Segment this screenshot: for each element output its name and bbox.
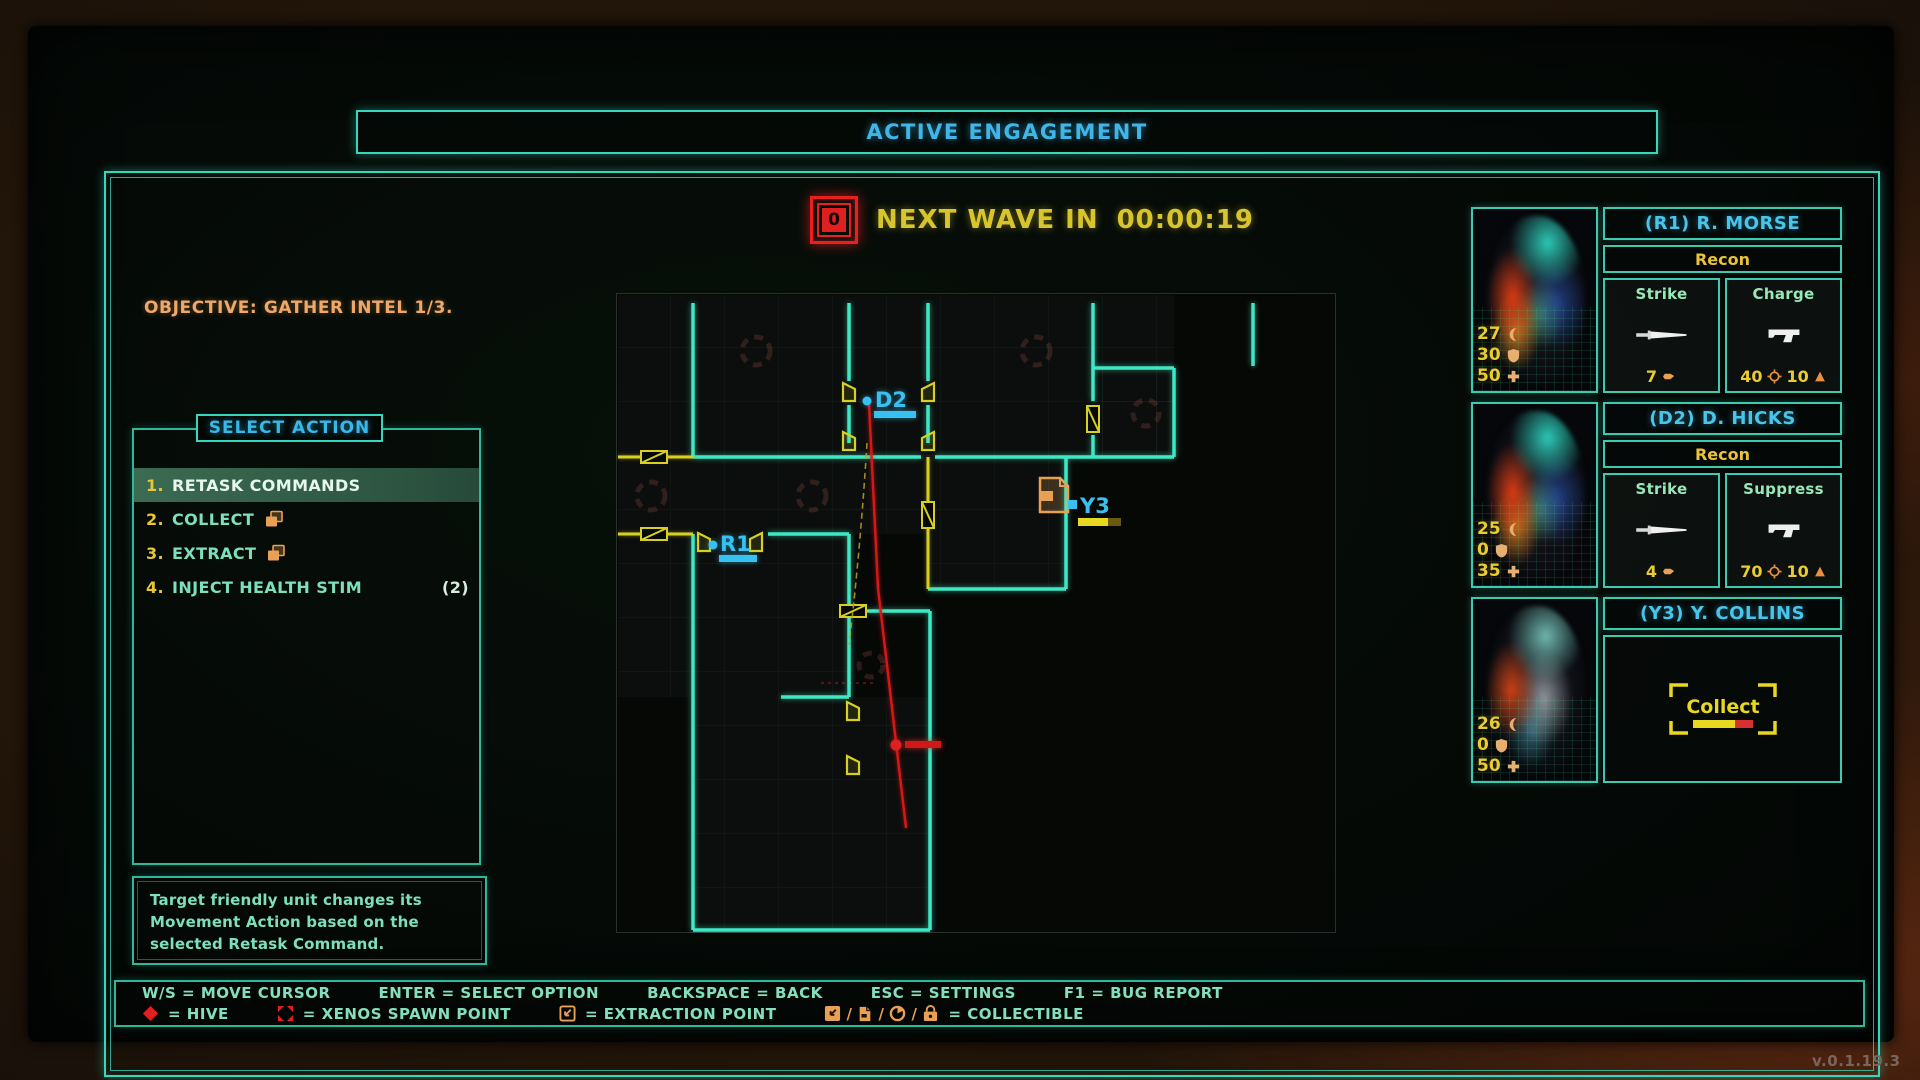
action-menu-title: SELECT ACTION [209, 418, 371, 438]
portrait-d-hicks: 25 0 35 [1471, 402, 1598, 588]
menu-item-retask-commands[interactable]: 1. RETASK COMMANDS [134, 468, 479, 502]
shield-icon [1494, 738, 1509, 753]
svg-text:Collect: Collect [1686, 696, 1759, 718]
keybind-bugreport: F1 = BUG REPORT [1064, 984, 1223, 1002]
health-cross-icon [1506, 369, 1521, 384]
melee-icon [1662, 565, 1677, 578]
keybind-settings: ESC = SETTINGS [871, 984, 1016, 1002]
squad-card-r1[interactable]: 27 30 50 (R1) R. MORSE Recon Strike [1471, 207, 1842, 393]
ammo-cone-icon [1813, 565, 1827, 578]
unit-name: (Y3) Y. COLLINS [1603, 597, 1842, 630]
portrait-y-collins: 26 0 50 [1471, 597, 1598, 783]
crt-screen: ACTIVE ENGAGEMENT 0 NEXT WAVE IN 00:00:1… [28, 26, 1894, 1042]
crescent-icon [1506, 327, 1521, 342]
page-title: ACTIVE ENGAGEMENT [866, 120, 1147, 144]
crescent-icon [1506, 717, 1521, 732]
menu-item-inject-health-stim[interactable]: 4. INJECT HEALTH STIM (2) [134, 570, 479, 604]
armor-stat: 30 [1477, 345, 1521, 365]
keybind-row: W/S = MOVE CURSOR ENTER = SELECT OPTION … [142, 984, 1837, 1002]
armor-stat: 0 [1477, 540, 1521, 560]
armor-stat: 0 [1477, 735, 1521, 755]
svg-text:R1: R1 [720, 532, 751, 556]
xenos-spawn-icon [277, 1005, 294, 1022]
squad-card-y3[interactable]: 26 0 50 (Y3) Y. COLLINS [1471, 597, 1842, 783]
menu-item-extract[interactable]: 3. EXTRACT [134, 536, 479, 570]
knife-icon [1633, 522, 1691, 538]
speed-stat: 27 [1477, 324, 1521, 344]
accuracy-crosshair-icon [1767, 369, 1782, 384]
health-stat: 50 [1477, 756, 1521, 776]
unit-class: Recon [1603, 440, 1842, 468]
crescent-icon [1506, 522, 1521, 537]
legend-hive: = HIVE [142, 1005, 229, 1023]
unit-name: (R1) R. MORSE [1603, 207, 1842, 240]
squad-card-d2[interactable]: 25 0 35 (D2) D. HICKS Recon Strike [1471, 402, 1842, 588]
keybind-select: ENTER = SELECT OPTION [379, 984, 600, 1002]
action-description-box: Target friendly unit changes its Movemen… [132, 876, 487, 965]
health-cross-icon [1506, 759, 1521, 774]
collect-action-button[interactable]: Collect [1661, 676, 1785, 742]
legend-row: = HIVE = XENOS SPAWN POINT = EXTRACTION … [142, 1005, 1837, 1023]
disc-icon [889, 1005, 906, 1022]
action-description: Target friendly unit changes its Movemen… [137, 881, 482, 960]
keybind-back: BACKSPACE = BACK [647, 984, 823, 1002]
wave-timer: 00:00:19 [1117, 205, 1254, 235]
documents-icon [264, 510, 284, 529]
documents-icon [266, 544, 286, 563]
accuracy-crosshair-icon [1767, 564, 1782, 579]
separator: / [911, 1005, 917, 1023]
ammo-cone-icon [1813, 370, 1827, 383]
health-stat: 50 [1477, 366, 1521, 386]
pistol-icon [1764, 325, 1804, 345]
tactical-map[interactable]: D2 R1 Y3 [616, 293, 1336, 933]
health-stat: 35 [1477, 561, 1521, 581]
ability-strike: Strike 4 [1603, 473, 1720, 588]
ability-charge: Charge 40 10 [1725, 278, 1842, 393]
document-icon [857, 1005, 873, 1023]
extraction-icon [559, 1005, 576, 1022]
collect-progress-remainder [1735, 720, 1753, 728]
unit-class: Recon [1603, 245, 1842, 273]
map-collectible-document-icon[interactable] [1040, 478, 1068, 512]
speed-stat: 26 [1477, 714, 1521, 734]
stim-count: (2) [442, 578, 469, 597]
action-menu: 1. RETASK COMMANDS 2. COLLECT 3. EXTRACT [132, 428, 481, 865]
header-tab: ACTIVE ENGAGEMENT [356, 110, 1658, 154]
squad-panel: 27 30 50 (R1) R. MORSE Recon Strike [1471, 207, 1842, 783]
arrow-square-icon [824, 1005, 841, 1022]
legend-extraction: = EXTRACTION POINT [559, 1005, 776, 1023]
ability-suppress: Suppress 70 10 [1725, 473, 1842, 588]
unit-name: (D2) D. HICKS [1603, 402, 1842, 435]
wave-countdown: NEXT WAVE IN 00:00:19 [876, 205, 1254, 235]
version-label: v.0.1.19.3 [1812, 1052, 1901, 1070]
knife-icon [1633, 327, 1691, 343]
action-menu-title-box: SELECT ACTION [196, 414, 383, 442]
keybind-move: W/S = MOVE CURSOR [142, 984, 331, 1002]
legend-xenos-spawn: = XENOS SPAWN POINT [277, 1005, 511, 1023]
health-cross-icon [1506, 564, 1521, 579]
menu-item-collect[interactable]: 2. COLLECT [134, 502, 479, 536]
shield-icon [1494, 543, 1509, 558]
svg-text:D2: D2 [875, 388, 907, 412]
monitor-bezel: ACTIVE ENGAGEMENT 0 NEXT WAVE IN 00:00:1… [0, 0, 1920, 1080]
shield-icon [1506, 348, 1521, 363]
portrait-r-morse: 27 30 50 [1471, 207, 1598, 393]
svg-text:Y3: Y3 [1079, 494, 1110, 518]
separator: / [846, 1005, 852, 1023]
wave-banner: 0 NEXT WAVE IN 00:00:19 [810, 196, 1254, 244]
help-bar: W/S = MOVE CURSOR ENTER = SELECT OPTION … [114, 980, 1865, 1027]
ability-strike: Strike 7 [1603, 278, 1720, 393]
melee-icon [1662, 370, 1677, 383]
hive-icon [142, 1005, 159, 1022]
wave-alert-icon: 0 [810, 196, 858, 244]
pistol-icon [1764, 520, 1804, 540]
collect-progress-fill [1693, 720, 1735, 728]
wave-label: NEXT WAVE IN [876, 205, 1099, 235]
legend-collectible: / / / = COLLECTIBLE [824, 1005, 1083, 1023]
speed-stat: 25 [1477, 519, 1521, 539]
separator: / [878, 1005, 884, 1023]
objective-text: OBJECTIVE: GATHER INTEL 1/3. [144, 298, 453, 318]
lock-icon [922, 1005, 939, 1022]
